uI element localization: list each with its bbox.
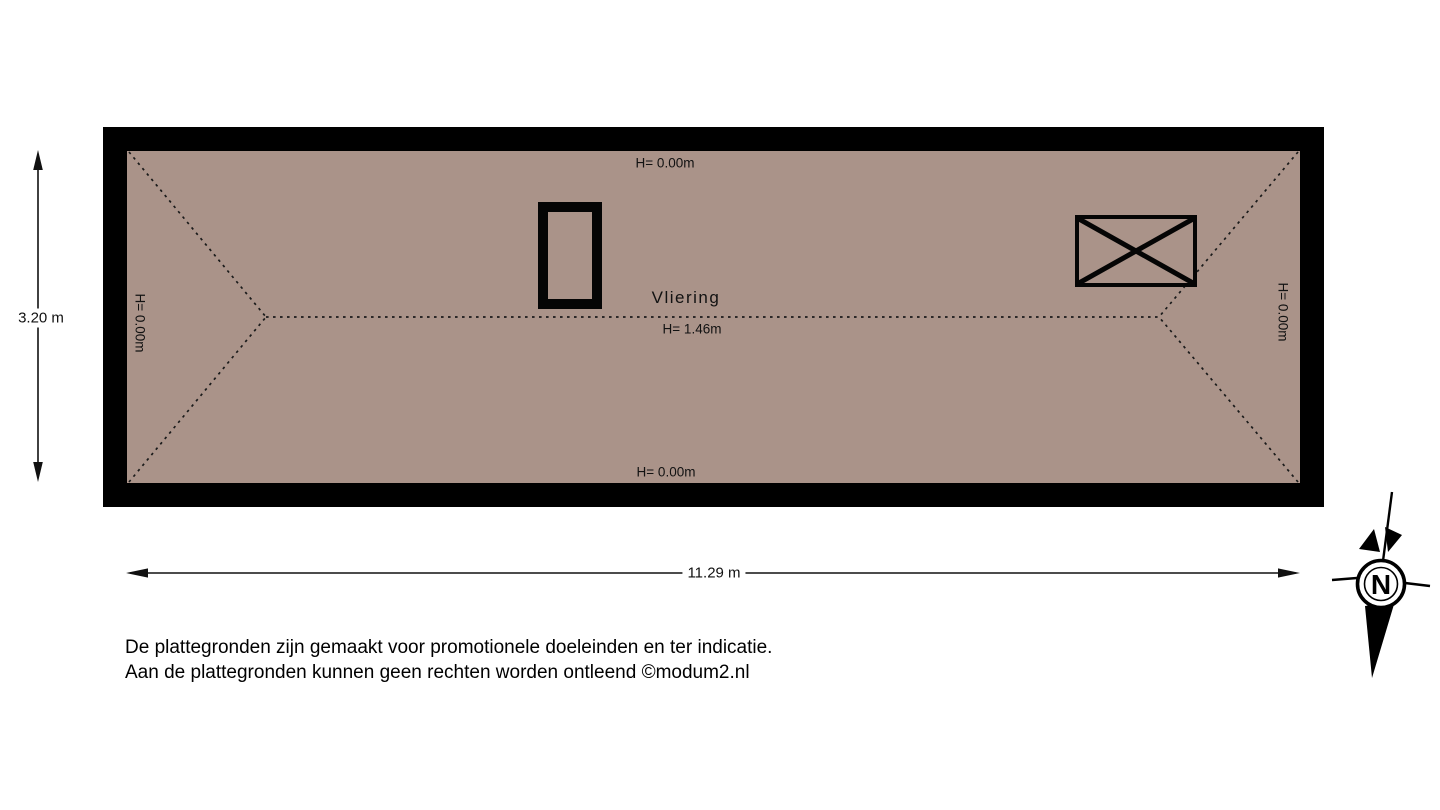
compass-rose-icon: N (1331, 487, 1431, 683)
roof-hatch-crossed (1075, 215, 1197, 287)
width-dimension-label: 11.29 m (682, 564, 745, 583)
floorplan: H= 0.00m H= 0.00m H= 0.00m H= 0.00m Vlie… (103, 127, 1324, 507)
height-label-bottom: H= 0.00m (637, 465, 696, 480)
north-label: N (1371, 569, 1391, 600)
roof-hip-lines (127, 151, 1300, 483)
disclaimer-line-2: Aan de plattegronden kunnen geen rechten… (125, 661, 772, 686)
depth-dimension-label: 3.20 m (13, 309, 69, 328)
ridge-height-label: H= 1.46m (663, 322, 722, 337)
room-name-label: Vliering (652, 288, 721, 308)
chimney-shaft (538, 202, 602, 309)
height-label-right: H= 0.00m (1276, 283, 1291, 342)
disclaimer-line-1: De plattegronden zijn gemaakt voor promo… (125, 636, 772, 661)
floorplan-page: H= 0.00m H= 0.00m H= 0.00m H= 0.00m Vlie… (0, 0, 1440, 810)
height-label-left: H= 0.00m (133, 294, 148, 353)
disclaimer-text: De plattegronden zijn gemaakt voor promo… (125, 636, 772, 685)
cross-icon (1079, 219, 1193, 283)
floor-area (127, 151, 1300, 483)
height-label-top: H= 0.00m (636, 156, 695, 171)
